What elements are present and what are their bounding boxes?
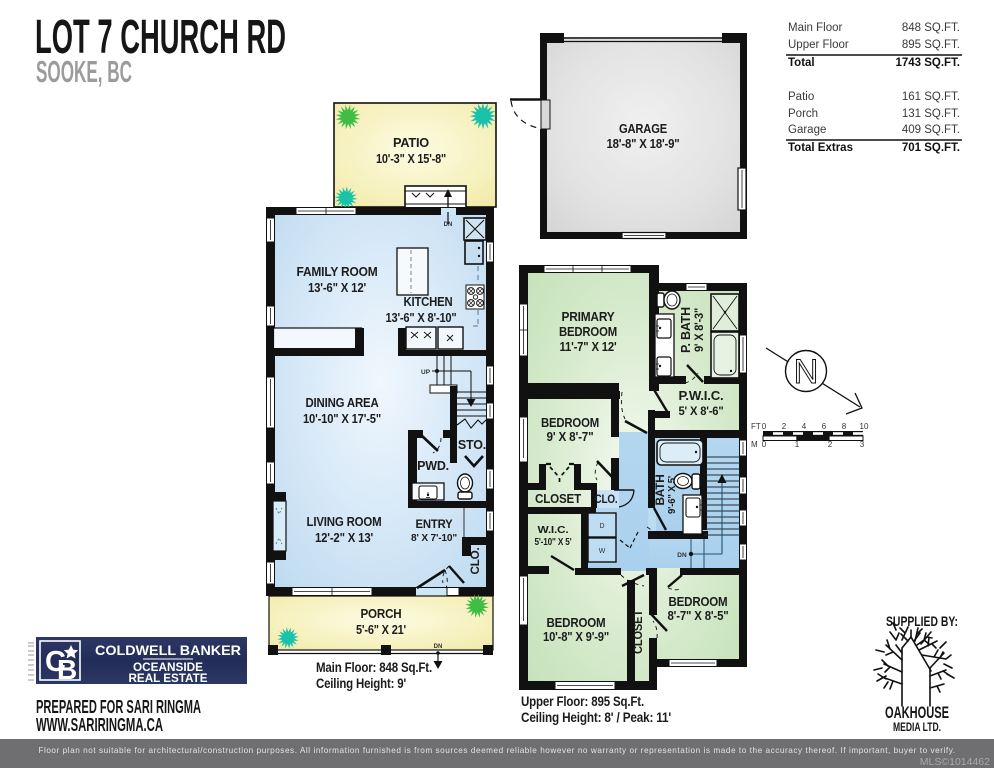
svg-text:10'-10" X 17'-5": 10'-10" X 17'-5" [303, 412, 381, 426]
svg-text:5'-10" X 5': 5'-10" X 5' [535, 537, 572, 548]
svg-text:MLS©1014462: MLS©1014462 [920, 756, 990, 768]
svg-text:848 SQ.FT.: 848 SQ.FT. [902, 22, 960, 34]
svg-text:11'-7" X 12': 11'-7" X 12' [560, 340, 617, 354]
svg-text:161 SQ.FT.: 161 SQ.FT. [902, 91, 960, 103]
svg-text:P. BATH: P. BATH [679, 307, 693, 353]
svg-text:DN: DN [677, 552, 687, 559]
svg-text:6: 6 [822, 422, 827, 431]
svg-text:W.I.C.: W.I.C. [538, 524, 569, 536]
svg-text:BEDROOM: BEDROOM [541, 416, 599, 430]
svg-text:5' X 8'-6": 5' X 8'-6" [679, 404, 724, 418]
svg-text:CLO.: CLO. [470, 547, 482, 574]
svg-text:9' X 8'-7": 9' X 8'-7" [547, 430, 594, 444]
svg-text:1743 SQ.FT.: 1743 SQ.FT. [895, 57, 960, 69]
svg-text:W: W [599, 548, 606, 555]
svg-text:FAMILY ROOM: FAMILY ROOM [297, 265, 378, 279]
svg-text:PATIO: PATIO [393, 136, 429, 150]
svg-text:12'-2" X 13': 12'-2" X 13' [315, 531, 373, 545]
svg-text:13'-6" X 8'-10": 13'-6" X 8'-10" [386, 311, 457, 325]
svg-text:2: 2 [828, 440, 833, 449]
svg-text:REAL ESTATE: REAL ESTATE [129, 673, 208, 685]
svg-text:8'-7" X 8'-5": 8'-7" X 8'-5" [668, 609, 729, 623]
svg-text:Upper Floor: 895 Sq.Ft.: Upper Floor: 895 Sq.Ft. [521, 694, 644, 709]
svg-text:10: 10 [860, 422, 869, 431]
svg-text:ENTRY: ENTRY [416, 519, 454, 531]
svg-text:701 SQ.FT.: 701 SQ.FT. [902, 142, 960, 154]
svg-text:9' X 8'-3": 9' X 8'-3" [692, 308, 706, 352]
svg-text:Upper Floor: Upper Floor [788, 39, 849, 51]
svg-text:FT: FT [751, 422, 761, 431]
svg-text:2: 2 [782, 422, 787, 431]
svg-text:409 SQ.FT.: 409 SQ.FT. [902, 124, 960, 136]
svg-text:SUPPLIED BY:: SUPPLIED BY: [886, 613, 958, 629]
svg-text:DN: DN [444, 222, 453, 228]
svg-text:Main Floor: 848 Sq.Ft.: Main Floor: 848 Sq.Ft. [316, 660, 432, 675]
svg-text:STO.: STO. [458, 438, 486, 452]
svg-text:Ceiling Height: 9': Ceiling Height: 9' [316, 676, 406, 691]
svg-text:8: 8 [842, 422, 847, 431]
svg-text:1: 1 [795, 440, 800, 449]
svg-text:0: 0 [762, 422, 767, 431]
svg-text:4: 4 [802, 422, 807, 431]
svg-text:Floor plan not suitable for ar: Floor plan not suitable for architectura… [38, 746, 955, 755]
svg-text:Porch: Porch [788, 108, 818, 120]
svg-text:DN: DN [434, 644, 443, 650]
svg-text:COLDWELL BANKER: COLDWELL BANKER [95, 642, 241, 658]
svg-text:10'-3" X 15'-8": 10'-3" X 15'-8" [376, 152, 446, 166]
svg-text:Total Extras: Total Extras [788, 142, 853, 154]
svg-text:PWD.: PWD. [417, 459, 449, 473]
svg-text:Patio: Patio [788, 91, 814, 103]
svg-text:GARAGE: GARAGE [619, 122, 667, 136]
svg-text:131 SQ.FT.: 131 SQ.FT. [902, 108, 960, 120]
svg-text:B: B [57, 654, 77, 685]
svg-text:895 SQ.FT.: 895 SQ.FT. [902, 39, 960, 51]
svg-text:UP: UP [421, 369, 431, 376]
svg-text:KITCHEN: KITCHEN [404, 295, 453, 309]
svg-text:Ceiling Height: 8' / Peak: 11': Ceiling Height: 8' / Peak: 11' [521, 710, 671, 725]
svg-text:0: 0 [762, 440, 767, 449]
svg-text:Main Floor: Main Floor [788, 22, 842, 34]
svg-text:LIVING ROOM: LIVING ROOM [307, 515, 382, 529]
svg-text:BEDROOM: BEDROOM [547, 616, 606, 630]
svg-text:WWW.SARIRINGMA.CA: WWW.SARIRINGMA.CA [36, 715, 163, 735]
svg-text:M: M [751, 440, 758, 449]
svg-text:N: N [794, 353, 819, 391]
svg-text:BEDROOM: BEDROOM [559, 325, 617, 339]
svg-text:13'-6" X 12': 13'-6" X 12' [308, 281, 366, 295]
svg-text:CLOSET: CLOSET [631, 609, 645, 654]
svg-text:CLOSET: CLOSET [535, 492, 582, 506]
svg-text:PREPARED FOR SARI RINGMA: PREPARED FOR SARI RINGMA [36, 697, 201, 717]
svg-text:3: 3 [860, 440, 865, 449]
svg-text:Garage: Garage [788, 124, 826, 136]
svg-text:PRIMARY: PRIMARY [562, 310, 616, 324]
svg-text:5'-6" X 21': 5'-6" X 21' [356, 623, 406, 637]
svg-text:Total: Total [788, 57, 815, 69]
svg-text:PORCH: PORCH [361, 607, 402, 621]
svg-text:CLO.: CLO. [595, 494, 618, 506]
svg-text:DINING AREA: DINING AREA [306, 396, 379, 410]
svg-text:MEDIA LTD.: MEDIA LTD. [893, 720, 941, 734]
svg-text:8' X 7'-10": 8' X 7'-10" [411, 532, 457, 544]
svg-text:10'-8" X 9'-9": 10'-8" X 9'-9" [543, 630, 609, 644]
svg-text:D: D [599, 523, 604, 530]
svg-text:BEDROOM: BEDROOM [669, 595, 728, 609]
svg-text:18'-8" X 18'-9": 18'-8" X 18'-9" [607, 137, 680, 151]
svg-text:SOOKE, BC: SOOKE, BC [36, 54, 132, 89]
svg-text:P.W.I.C.: P.W.I.C. [679, 389, 724, 403]
